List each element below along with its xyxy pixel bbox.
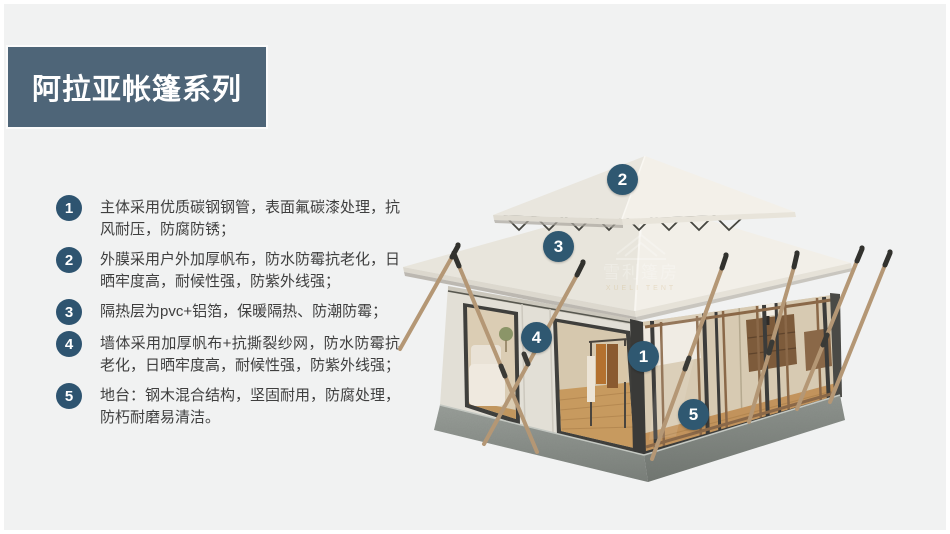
- watermark-cn-text: 雪利篷房: [603, 263, 679, 282]
- watermark-en-text: XUELI TENT: [606, 285, 676, 292]
- tent-callout-badge-3: 3: [543, 231, 574, 262]
- page-background: 阿拉亚帐篷系列 1 主体采用优质碳钢钢管，表面氟碳漆处理，抗风耐压，防腐防锈； …: [0, 0, 950, 534]
- upper-roof: [493, 156, 796, 228]
- tent-callout-badge-4: 4: [521, 322, 552, 353]
- tent-callout-badge-5: 5: [678, 399, 709, 430]
- tent-illustration: 雪利篷房 XUELI TENT: [4, 4, 950, 534]
- tent-callout-badge-2: 2: [607, 164, 638, 195]
- tent-callout-badge-1: 1: [628, 341, 659, 372]
